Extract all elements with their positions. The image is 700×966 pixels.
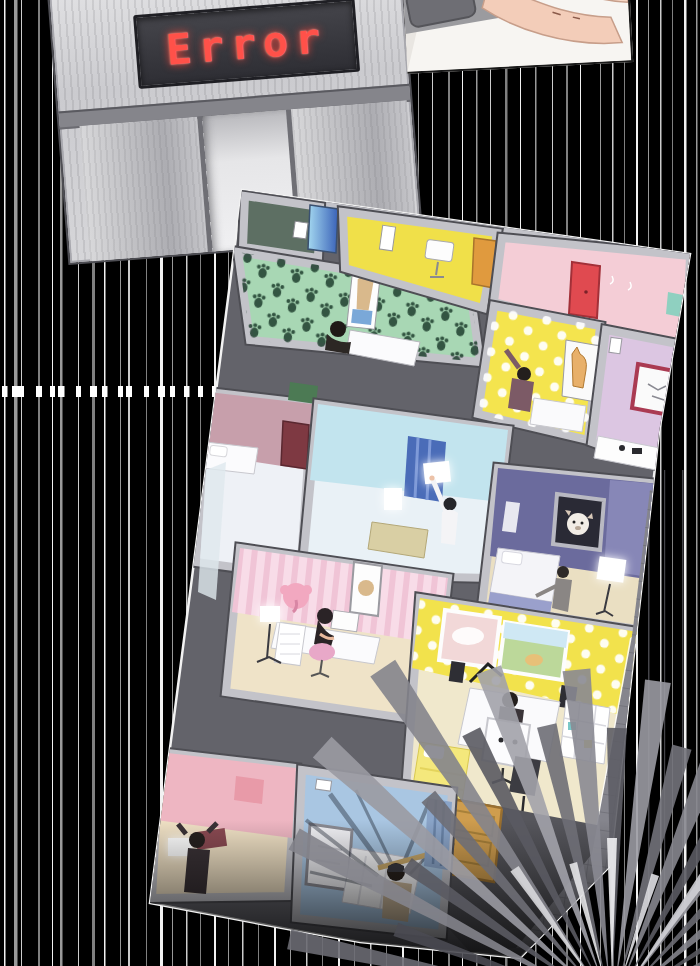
pink-chair: [309, 643, 335, 661]
rooms-panel-layer: [0, 0, 700, 966]
wall-camera-icon: [293, 221, 308, 239]
wall-camera-icon: [315, 779, 331, 791]
blue-door: [308, 205, 338, 253]
figure-head: [330, 321, 346, 337]
teddy-frame: [350, 562, 382, 616]
white-bed: [488, 548, 560, 614]
poster-clouds: [439, 610, 500, 668]
picture-frame: [379, 225, 395, 251]
room-cyan: [302, 404, 508, 578]
pink-panel: [234, 776, 264, 804]
webtoon-page: { "scene": { "elevator": { "display_text…: [0, 0, 700, 966]
poster-landscape: [499, 622, 568, 680]
softbox-light: [596, 556, 626, 583]
dog-window: [553, 494, 604, 550]
teal-corner: [666, 292, 688, 318]
speaker: [449, 661, 466, 683]
monitor: [331, 610, 359, 631]
red-door: [569, 262, 600, 318]
maroon-door: [281, 421, 309, 469]
figure-head: [517, 367, 531, 381]
room-purple: [482, 468, 660, 630]
wall-speaker: [609, 337, 622, 353]
figure-body: [508, 378, 534, 412]
room-polka-cat: [478, 306, 600, 440]
framed-picture: [632, 364, 680, 416]
